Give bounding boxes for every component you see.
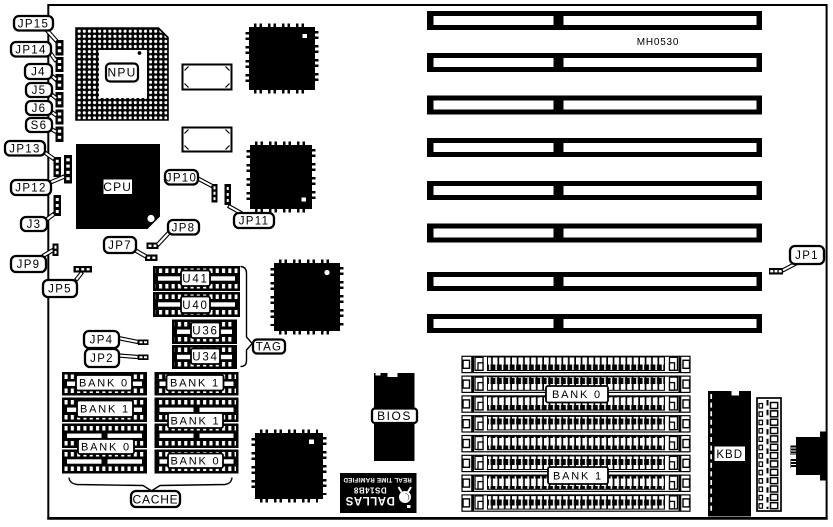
svg-text:CPU: CPU xyxy=(103,180,132,194)
svg-text:S6: S6 xyxy=(31,120,48,132)
svg-text:JP12: JP12 xyxy=(15,183,46,195)
svg-text:BANK 0: BANK 0 xyxy=(552,389,602,401)
svg-text:BANK 1: BANK 1 xyxy=(80,404,130,416)
svg-text:BANK 1: BANK 1 xyxy=(171,415,221,427)
svg-text:JP5: JP5 xyxy=(48,284,72,296)
svg-text:JP1: JP1 xyxy=(795,250,819,262)
svg-text:BIOS: BIOS xyxy=(377,409,412,423)
svg-text:U36: U36 xyxy=(192,325,219,337)
svg-text:DALLAS: DALLAS xyxy=(345,494,395,506)
svg-text:JP11: JP11 xyxy=(239,216,270,228)
svg-text:KBD: KBD xyxy=(716,449,743,461)
svg-text:BANK 1: BANK 1 xyxy=(553,470,603,482)
svg-text:J6: J6 xyxy=(32,103,47,115)
svg-text:J5: J5 xyxy=(32,85,47,97)
svg-text:DS14B8: DS14B8 xyxy=(353,486,386,495)
svg-text:JP13: JP13 xyxy=(9,143,40,155)
svg-text:U34: U34 xyxy=(192,351,219,363)
svg-text:REAL TIME RAMIFIED: REAL TIME RAMIFIED xyxy=(343,476,412,483)
svg-text:JP7: JP7 xyxy=(108,240,132,252)
svg-text:BANK 0: BANK 0 xyxy=(171,456,221,468)
svg-text:JP10: JP10 xyxy=(166,172,197,184)
svg-text:JP4: JP4 xyxy=(90,335,114,347)
svg-text:TAG: TAG xyxy=(256,342,282,354)
svg-text:J3: J3 xyxy=(27,219,42,231)
svg-text:JP15: JP15 xyxy=(18,18,49,30)
svg-text:CACHE: CACHE xyxy=(132,492,178,506)
svg-text:JP14: JP14 xyxy=(15,44,46,56)
svg-text:BANK 0: BANK 0 xyxy=(81,441,131,453)
svg-text:JP2: JP2 xyxy=(90,353,114,365)
svg-text:J4: J4 xyxy=(31,67,46,79)
svg-text:JP9: JP9 xyxy=(17,259,41,271)
svg-text:MH0530: MH0530 xyxy=(637,37,680,48)
svg-text:U41: U41 xyxy=(182,273,209,285)
svg-text:JP8: JP8 xyxy=(172,222,196,234)
svg-text:BANK 1: BANK 1 xyxy=(170,378,220,390)
svg-text:BANK 0: BANK 0 xyxy=(79,378,129,390)
svg-text:U40: U40 xyxy=(182,300,209,312)
svg-text:NPU: NPU xyxy=(108,66,137,80)
